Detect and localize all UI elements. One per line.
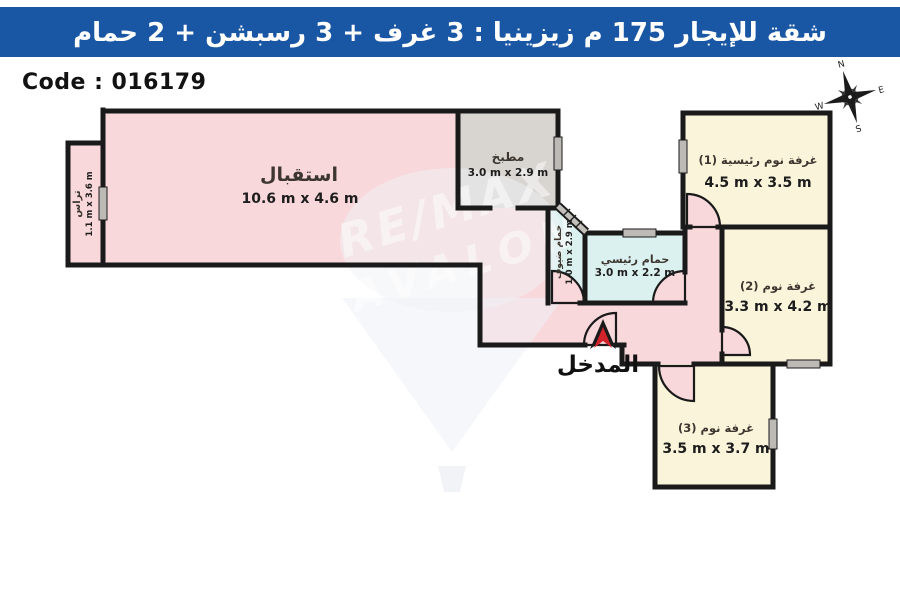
guest-bath-dims: 1.0 m x 2.9 m [565,219,575,284]
main-bath-dims: 3.0 m x 2.2 m [595,267,676,279]
compass-north-label: N [837,59,846,70]
bedroom1-name: غرفة نوم رئيسية (1) [698,153,817,168]
floor-plan-canvas: شقة للإيجار 175 م زيزينيا : 3 غرف + 3 رس… [0,0,900,599]
compass-south-label: S [855,124,863,135]
bedroom1-window [679,140,687,173]
compass-east-label: E [877,85,885,96]
terrace-window [99,187,107,220]
header-title: شقة للإيجار 175 م زيزينيا : 3 غرف + 3 رس… [73,18,827,48]
bedroom1-dims: 4.5 m x 3.5 m [704,175,811,191]
main-bath-window [623,229,656,237]
kitchen-window [554,137,562,170]
kitchen-name: مطبخ [492,150,525,164]
real-estate-flyer: شقة للإيجار 175 م زيزينيا : 3 غرف + 3 رس… [0,0,900,599]
kitchen-dims: 3.0 m x 2.9 m [468,167,549,179]
entrance-label: المدخل [557,352,639,378]
terrace-name: تراس [72,190,83,217]
terrace-dims: 1.1 m x 3.6 m [85,171,95,236]
header-bar: شقة للإيجار 175 م زيزينيا : 3 غرف + 3 رس… [0,7,900,57]
bedroom3-dims: 3.5 m x 3.7 m [662,441,769,457]
watermark-balloon-body [342,298,563,452]
main-bath-name: حمام رئيسي [601,253,670,266]
bedroom2-dims: 3.3 m x 4.2 m [724,299,831,315]
reception-dims: 10.6 m x 4.6 m [241,191,358,207]
listing-code: Code : 016179 [22,70,206,95]
reception-name: استقبال [260,164,338,186]
watermark-balloon-basket [438,466,466,492]
bedroom2-window [787,360,820,368]
bedroom2-name: غرفة نوم (2) [740,279,816,294]
bedroom3-name: غرفة نوم (3) [678,421,754,436]
guest-bath-name: حمام ضيوف [554,225,564,279]
bedroom3-window [769,419,777,449]
